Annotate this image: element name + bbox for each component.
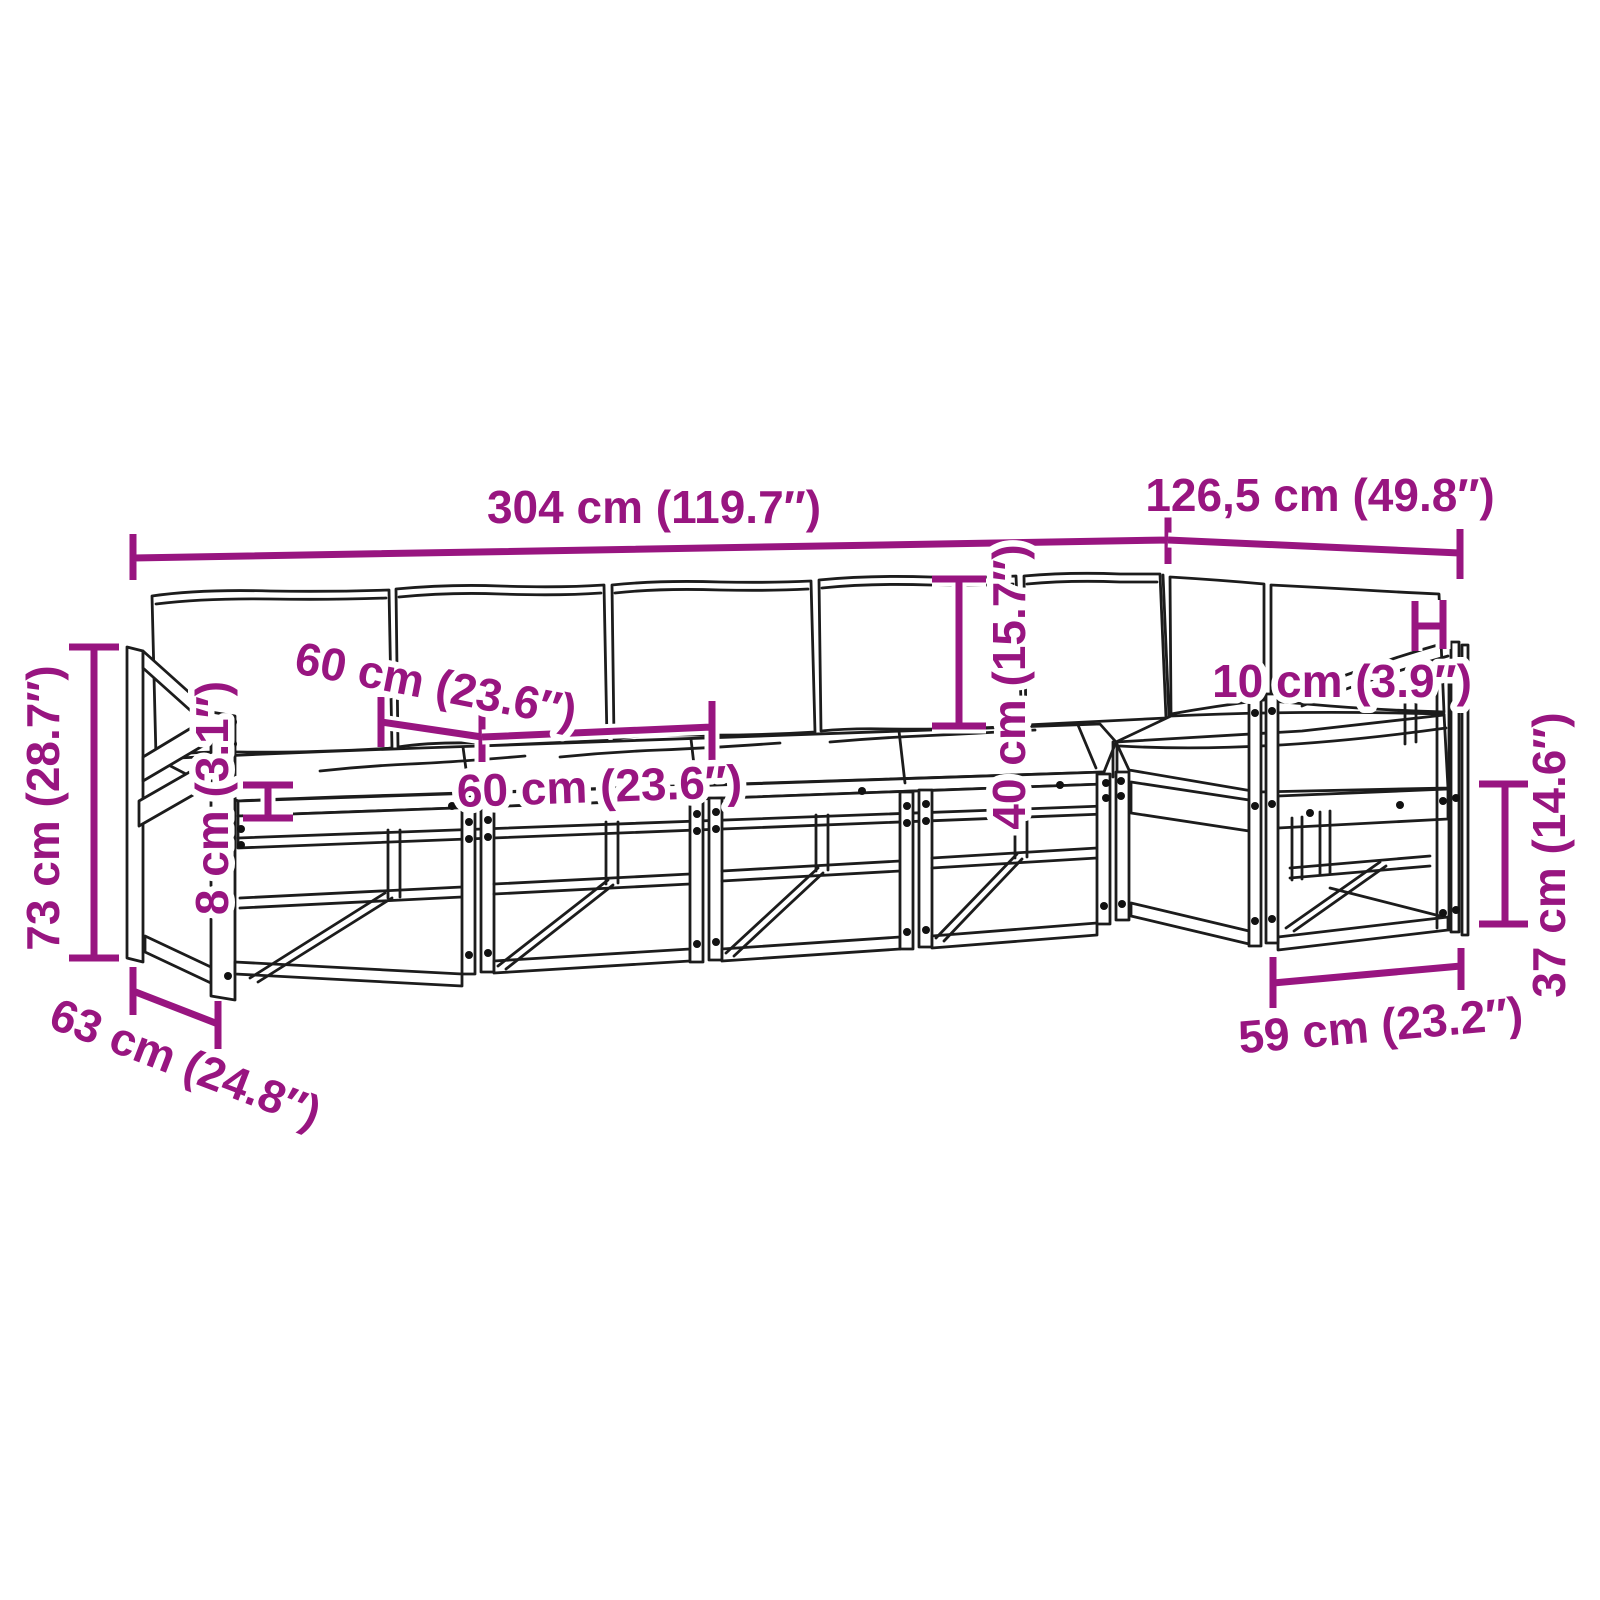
svg-text:60 cm (23.6″): 60 cm (23.6″): [456, 755, 743, 817]
svg-text:304 cm (119.7″): 304 cm (119.7″): [487, 481, 821, 533]
svg-text:8 cm (3.1″): 8 cm (3.1″): [186, 681, 238, 915]
svg-text:73 cm (28.7″): 73 cm (28.7″): [17, 665, 69, 950]
svg-text:126,5 cm (49.8″): 126,5 cm (49.8″): [1145, 469, 1494, 521]
svg-text:37 cm (14.6″): 37 cm (14.6″): [1523, 712, 1575, 997]
svg-text:10 cm (3.9″): 10 cm (3.9″): [1212, 655, 1472, 707]
svg-text:40 cm (15.7″): 40 cm (15.7″): [983, 544, 1035, 829]
